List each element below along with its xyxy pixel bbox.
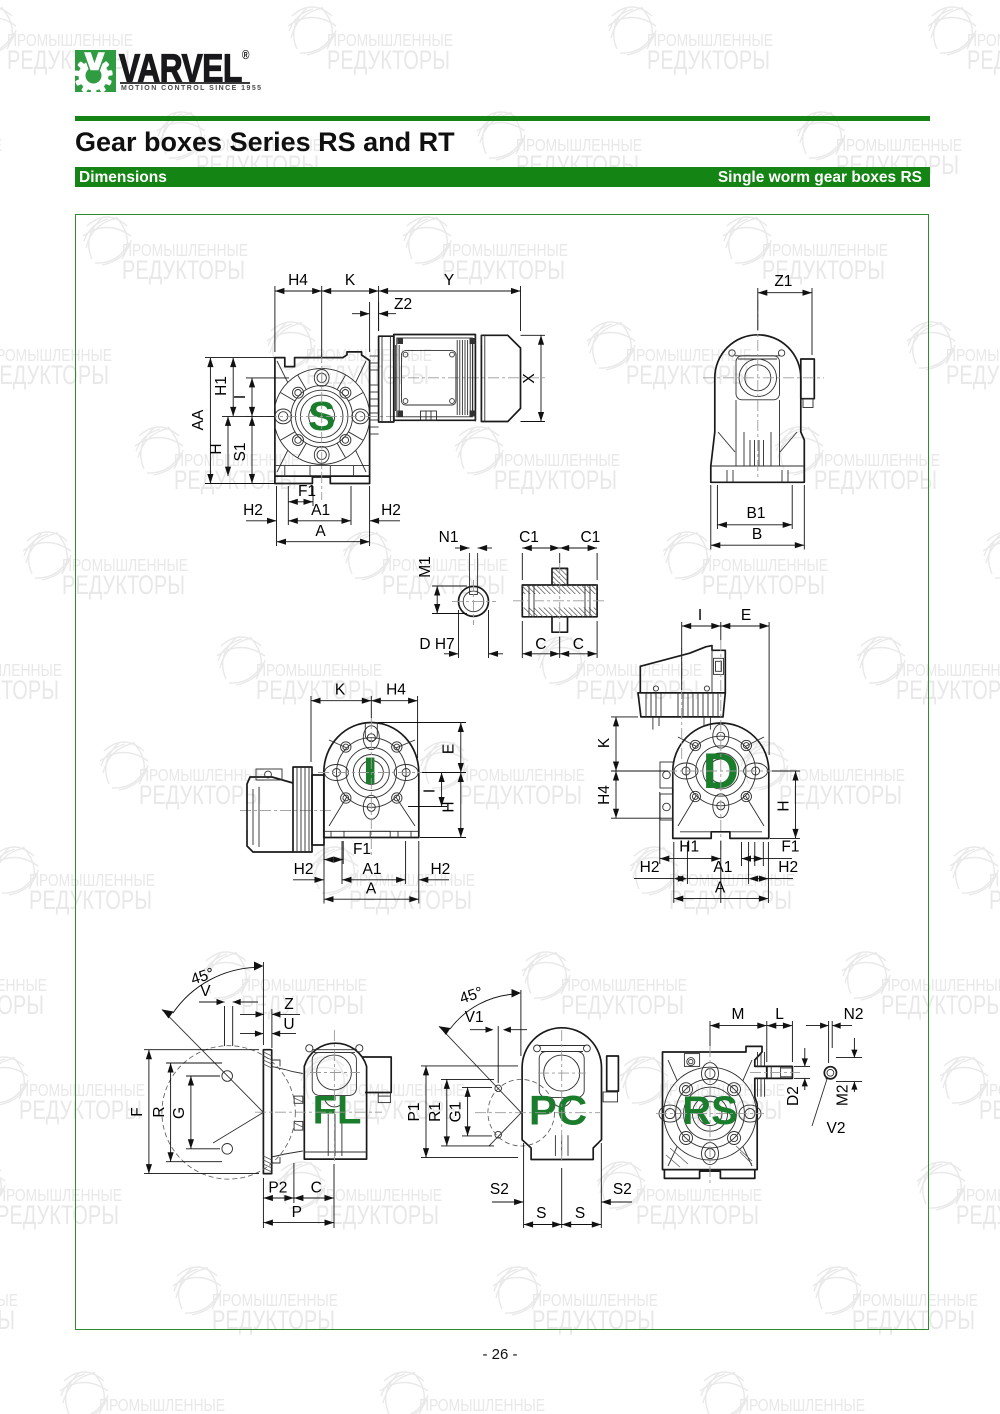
svg-text:H2: H2 [243,502,263,519]
svg-text:A1: A1 [363,861,382,878]
svg-text:E: E [441,744,458,754]
svg-text:F1: F1 [781,839,799,856]
svg-text:РЕДУКТОРЫ: РЕДУКТОРЫ [967,45,1000,75]
svg-text:I: I [422,789,439,793]
svg-text:M: M [732,1006,745,1023]
svg-text:H2: H2 [294,861,314,878]
svg-text:S: S [575,1205,585,1222]
svg-text:U: U [283,1016,294,1033]
svg-text:D H7: D H7 [419,636,454,653]
svg-text:V1: V1 [465,1009,484,1026]
svg-text:РЕДУКТОРЫ: РЕДУКТОРЫ [0,990,44,1020]
svg-text:V2: V2 [827,1120,846,1137]
svg-text:F1: F1 [353,841,371,858]
svg-text:C1: C1 [519,529,539,546]
svg-text:R1: R1 [427,1102,444,1122]
svg-text:A1: A1 [311,502,330,519]
svg-text:РЕДУКТОРЫ: РЕДУКТОРЫ [739,1410,862,1414]
svg-text:РЕДУКТОРЫ: РЕДУКТОРЫ [327,45,450,75]
svg-text:A: A [715,880,726,897]
svg-text:D2: D2 [785,1086,802,1106]
svg-text:I: I [232,395,249,399]
svg-text:S: S [536,1205,546,1222]
svg-text:G1: G1 [448,1102,465,1123]
svg-text:РЕДУКТОРЫ: РЕДУКТОРЫ [989,885,1000,915]
svg-text:РЕДУКТОРЫ: РЕДУКТОРЫ [979,1095,1000,1125]
svg-text:H: H [776,800,793,811]
svg-text:F: F [129,1107,146,1116]
svg-text:H2: H2 [430,861,450,878]
svg-text:A: A [315,523,326,540]
svg-text:H2: H2 [778,859,798,876]
svg-text:A1: A1 [713,859,732,876]
svg-text:S2: S2 [490,1181,509,1198]
svg-text:C: C [573,636,584,653]
svg-text:P1: P1 [406,1103,423,1122]
svg-text:L: L [775,1006,784,1023]
svg-text:M1: M1 [417,556,434,578]
svg-text:X: X [521,373,538,384]
svg-text:B1: B1 [747,505,766,522]
svg-text:S1: S1 [232,443,249,462]
svg-text:PC: PC [529,1086,587,1133]
svg-text:N1: N1 [439,529,459,546]
svg-text:FL: FL [313,1089,362,1133]
svg-text:H4: H4 [288,272,308,289]
svg-text:H2: H2 [640,859,660,876]
svg-text:R: R [151,1106,168,1117]
svg-text:H4: H4 [386,682,406,699]
svg-text:Z2: Z2 [394,296,412,313]
svg-text:45°: 45° [458,984,486,1007]
svg-text:H: H [208,443,225,454]
svg-text:H4: H4 [596,785,613,805]
svg-text:K: K [345,272,356,289]
svg-text:H1: H1 [679,839,699,856]
svg-text:РЕДУКТОРЫ: РЕДУКТОРЫ [956,1200,1000,1230]
svg-text:I: I [698,607,702,624]
svg-text:H1: H1 [213,376,230,396]
svg-text:F1: F1 [298,483,316,500]
svg-text:РЕДУКТОРЫ: РЕДУКТОРЫ [99,1410,222,1414]
svg-text:K: K [335,682,346,699]
svg-text:C: C [311,1180,322,1197]
svg-text:РЕДУКТОРЫ: РЕДУКТОРЫ [0,675,59,705]
svg-text:M2: M2 [834,1084,851,1106]
svg-text:P2: P2 [268,1180,287,1197]
svg-text:H2: H2 [381,502,401,519]
svg-text:C: C [535,636,546,653]
svg-text:S2: S2 [613,1181,632,1198]
svg-text:C1: C1 [580,529,600,546]
svg-text:A: A [366,881,377,898]
svg-text:E: E [741,607,751,624]
svg-text:K: K [596,737,613,748]
svg-text:N2: N2 [844,1006,864,1023]
svg-text:P: P [292,1204,302,1221]
svg-text:Y: Y [444,272,454,289]
svg-text:H: H [441,801,458,812]
svg-text:ПРОМЫШЛЕННЫЕ: ПРОМЫШЛЕННЫЕ [0,135,2,155]
svg-text:AA: AA [190,409,207,430]
svg-text:РЕДУКТОРЫ: РЕДУКТОРЫ [0,1305,15,1335]
svg-text:G: G [171,1107,188,1119]
svg-text:B: B [752,526,762,543]
svg-text:V: V [200,983,211,1000]
svg-text:Z: Z [284,996,293,1013]
svg-text:РЕДУКТОРЫ: РЕДУКТОРЫ [647,45,770,75]
svg-text:РЕДУКТОРЫ: РЕДУКТОРЫ [419,1410,542,1414]
svg-text:РЕДУКТОРЫ: РЕДУКТОРЫ [946,360,1000,390]
svg-text:Z1: Z1 [774,273,792,290]
